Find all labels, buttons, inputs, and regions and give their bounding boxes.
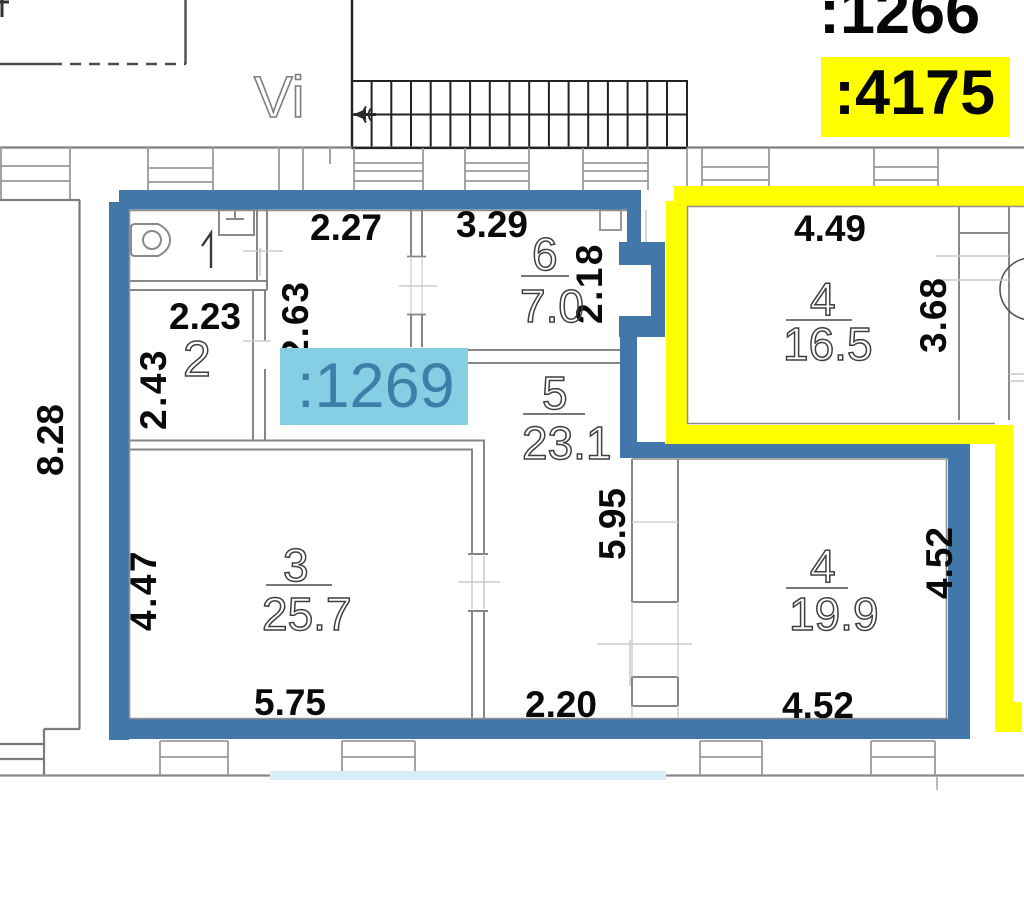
svg-text:3.68: 3.68 <box>913 277 954 353</box>
svg-text:5.95: 5.95 <box>592 488 633 560</box>
svg-text:4: 4 <box>810 540 836 592</box>
svg-text:23.1: 23.1 <box>522 417 612 469</box>
svg-text:25.7: 25.7 <box>262 588 352 640</box>
svg-text:Vi: Vi <box>254 65 305 130</box>
svg-text:4.47: 4.47 <box>123 549 164 631</box>
svg-text::1266: :1266 <box>819 0 980 47</box>
svg-text:3.29: 3.29 <box>456 204 528 245</box>
svg-text:16.5: 16.5 <box>783 318 873 370</box>
svg-text:2: 2 <box>183 331 211 387</box>
svg-text::4175: :4175 <box>834 58 995 128</box>
svg-text:4.52: 4.52 <box>782 685 854 726</box>
svg-text:3: 3 <box>283 539 309 591</box>
svg-text:6: 6 <box>532 228 558 280</box>
svg-text:4.52: 4.52 <box>919 527 960 599</box>
svg-text:4.49: 4.49 <box>794 208 866 249</box>
svg-text:5.75: 5.75 <box>254 682 326 723</box>
svg-text:19.9: 19.9 <box>789 588 879 640</box>
svg-text:7.0: 7.0 <box>520 280 584 332</box>
svg-text:2.27: 2.27 <box>310 207 382 248</box>
svg-text:5: 5 <box>542 367 568 419</box>
svg-text:2.63: 2.63 <box>275 280 316 360</box>
svg-text:2.43: 2.43 <box>133 348 174 430</box>
svg-text::1269: :1269 <box>297 351 455 421</box>
svg-text:2.20: 2.20 <box>525 684 597 725</box>
svg-text:8.28: 8.28 <box>30 404 71 476</box>
